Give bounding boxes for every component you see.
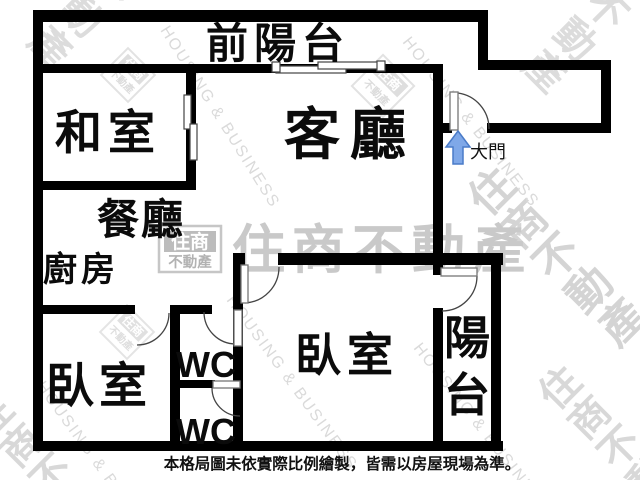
wall-kitchen-bottom: [33, 305, 135, 314]
wall-porch-bottom: [487, 123, 611, 133]
room-label-living-room: 客廳: [284, 103, 416, 166]
wall-living-right: [433, 64, 443, 253]
main-door-label: 大門: [470, 142, 506, 162]
floor-plan-page: 住商不動產 住商不動產 住商不動產 住商不動產 住商不動產 HOUSING & …: [0, 0, 640, 480]
wc-upper-door-leaf: [234, 310, 242, 346]
room-label-bedroom-left: 臥室: [46, 360, 152, 413]
entry-door-leaf: [450, 92, 458, 130]
wall-porch-right: [601, 60, 611, 133]
washitsu-sliding-pane-lower: [190, 124, 197, 160]
caption-disclaimer: 本格局圖未依實際比例繪製，皆需以房屋現場為準。: [164, 454, 521, 473]
floor-plan-svg: 住商不動產 住商不動產 住商不動產 住商不動產 住商不動產 HOUSING & …: [0, 0, 640, 480]
wall-outer-left: [33, 10, 43, 451]
wall-washitsu-bottom: [33, 181, 196, 190]
rear-balcony-door-leaf: [441, 268, 477, 276]
logo-box-bottom-text: 不動產: [168, 253, 212, 271]
room-label-front-balcony: 前陽台: [206, 20, 350, 67]
wall-porch-top: [478, 60, 611, 70]
wall-step-right: [478, 10, 488, 68]
room-label-wc-lower: WC: [176, 411, 236, 452]
wall-bedroom2-balcony-lower: [433, 308, 443, 451]
room-label-wc-upper: WC: [176, 344, 236, 385]
wall-wc-top: [170, 305, 212, 314]
front-window-cap-right: [377, 61, 385, 71]
wall-rear-balcony-right: [491, 253, 501, 451]
wall-bedroom2-top: [278, 253, 503, 265]
room-label-washitsu: 和室: [55, 106, 161, 159]
room-label-kitchen: 廚房: [43, 250, 119, 289]
wall-bedroom2-top-nub: [233, 253, 245, 265]
room-label-dining-room: 餐廳: [97, 196, 185, 243]
wall-outer-bottom: [33, 441, 503, 451]
watermark-brand-center-text: 住商不動產: [232, 221, 532, 280]
bedroom2-door-leaf: [241, 265, 248, 303]
room-label-bedroom-right: 臥室: [295, 329, 399, 381]
